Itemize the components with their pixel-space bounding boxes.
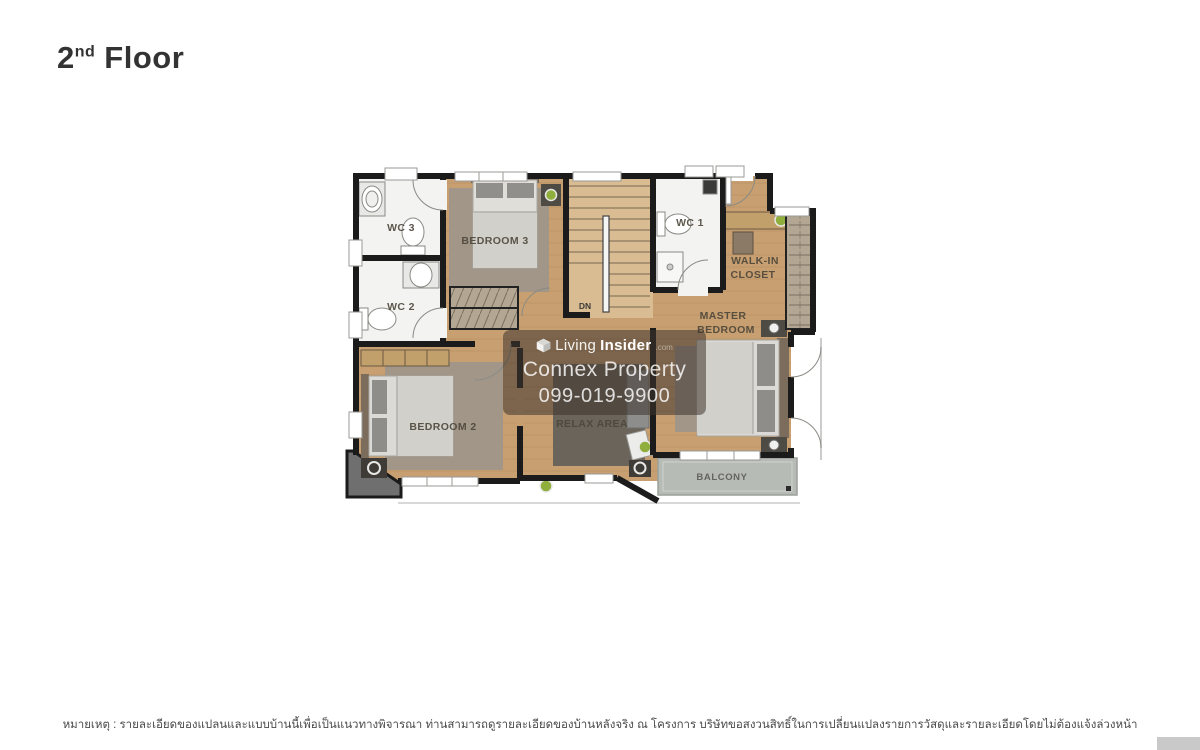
page-title: 2ndFloor (57, 40, 184, 76)
watermark: LivingInsider.com Connex Property 099-01… (503, 330, 706, 415)
stair-rail (603, 216, 609, 312)
room-label-relax-area: RELAX AREA (556, 418, 628, 430)
room-label-master-line1: MASTER (700, 310, 747, 322)
room-label-wc1: WC 1 (676, 217, 704, 229)
brand-insider: Insider (600, 338, 651, 353)
stairs-dn-label: DN (579, 301, 591, 311)
room-label-wc3: WC 3 (387, 222, 415, 234)
stool (733, 232, 753, 254)
room-label-balcony: BALCONY (696, 472, 747, 483)
watermark-phone: 099-019-9900 (539, 385, 671, 408)
plant-relax-2 (639, 441, 651, 453)
room-label-bedroom3: BEDROOM 3 (461, 235, 528, 247)
room-label-master-line2: BEDROOM (697, 324, 755, 336)
watermark-company: Connex Property (523, 358, 687, 382)
room-label-bedroom2: BEDROOM 2 (409, 421, 476, 433)
cube-logo-icon (536, 338, 551, 353)
room-label-walkin-line1: WALK-IN (731, 255, 779, 267)
room-label-wc2: WC 2 (387, 301, 415, 313)
hall-closet (450, 287, 518, 329)
corner-gray-box (1157, 737, 1200, 750)
plant-bedroom3 (546, 190, 557, 201)
footer-note: หมายเหตุ : รายละเอียดของแปลนและแบบบ้านนี… (0, 716, 1200, 734)
brand-living: Living (555, 338, 596, 353)
watermark-brand: LivingInsider.com (536, 338, 673, 353)
floor-ordinal: nd (75, 44, 96, 61)
plant-relax-1 (540, 480, 552, 492)
brand-tld: .com (655, 344, 672, 352)
floor-number: 2 (57, 40, 75, 75)
floor-word: Floor (104, 40, 184, 75)
master-bedroom-furniture (697, 320, 789, 453)
room-label-walkin-line2: CLOSET (731, 269, 776, 281)
